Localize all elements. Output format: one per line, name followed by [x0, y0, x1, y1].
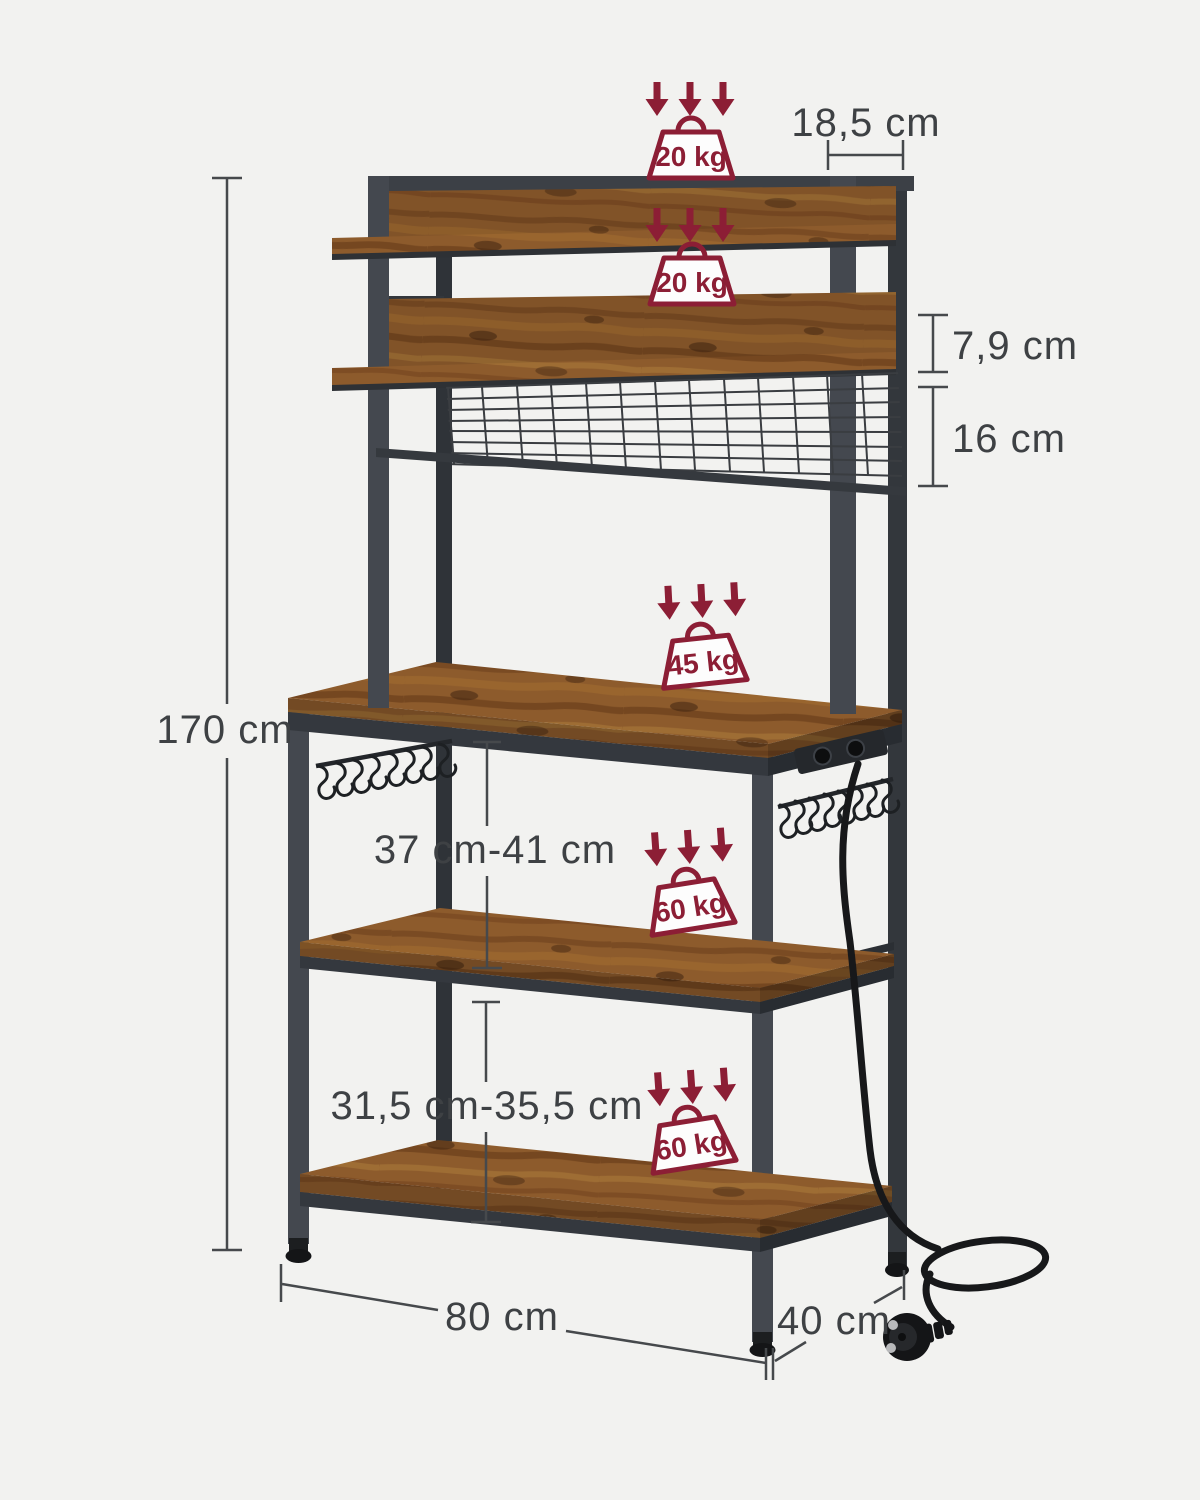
power-cable — [843, 764, 1049, 1327]
s-hooks-right — [778, 779, 899, 837]
weight-capacity-label: 20 kg — [656, 267, 728, 298]
top-shelf — [332, 186, 896, 260]
product-dimension-diagram: 18,5 cm 7,9 cm 16 cm 170 cm 37 cm-41 cm … — [0, 0, 1200, 1500]
dimension-label-bottom-clearance: 31,5 cm-35,5 cm — [331, 1084, 644, 1128]
dimension-label-top-depth: 18,5 cm — [791, 101, 940, 145]
middle-shelf — [300, 908, 894, 1014]
dimension-label-total-height: 170 cm — [156, 708, 293, 752]
dimension-label-lip-height: 7,9 cm — [952, 324, 1078, 368]
load-arrows-bottom-shelf — [646, 1067, 737, 1107]
dimension-label-mesh-height: 16 cm — [952, 417, 1066, 461]
s-hooks-left — [316, 741, 456, 798]
weight-badge-worktop: 45 kg — [657, 620, 747, 688]
bottom-shelf — [300, 1140, 892, 1252]
weight-badge-top-shelf: 20 kg — [649, 118, 733, 178]
load-arrows-worktop — [656, 582, 747, 621]
weight-capacity-label: 20 kg — [655, 141, 727, 172]
mesh-panel — [376, 373, 906, 496]
dimension-label-depth: 40 cm — [777, 1299, 891, 1343]
weight-badge-bottom-shelf: 60 kg — [644, 1101, 736, 1173]
dimension-label-mid-clearance: 37 cm-41 cm — [374, 828, 616, 872]
cross-rail — [376, 448, 906, 496]
load-arrows-second-shelf — [646, 208, 735, 242]
load-arrows-middle-shelf — [643, 827, 734, 867]
weight-badge-middle-shelf: 60 kg — [643, 863, 735, 935]
weight-badge-second-shelf: 20 kg — [650, 244, 734, 304]
bakers-rack-illustration: 18,5 cm 7,9 cm 16 cm 170 cm 37 cm-41 cm … — [0, 0, 1200, 1500]
dimension-label-width: 80 cm — [445, 1295, 559, 1339]
load-arrows-top-shelf — [646, 82, 735, 116]
